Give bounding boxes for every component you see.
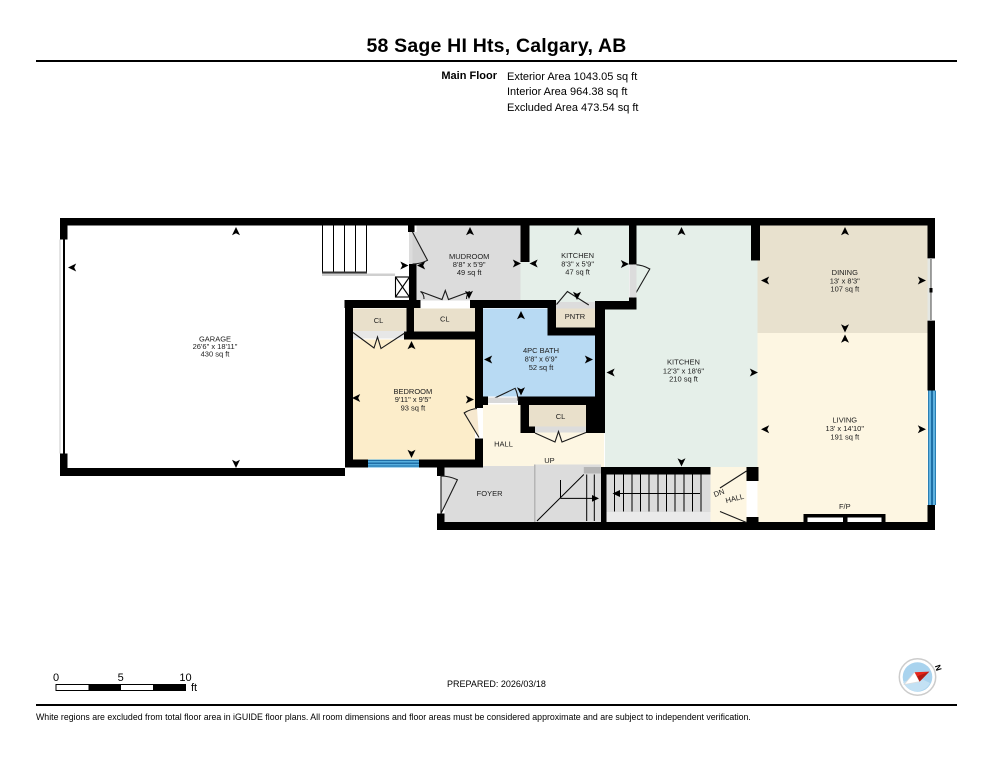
svg-text:10: 10	[179, 672, 191, 684]
svg-text:N: N	[933, 664, 943, 672]
svg-text:0: 0	[53, 672, 59, 684]
svg-text:PREPARED: 2026/03/18: PREPARED: 2026/03/18	[447, 679, 546, 689]
svg-text:5: 5	[118, 672, 124, 684]
svg-text:ft: ft	[191, 682, 197, 694]
